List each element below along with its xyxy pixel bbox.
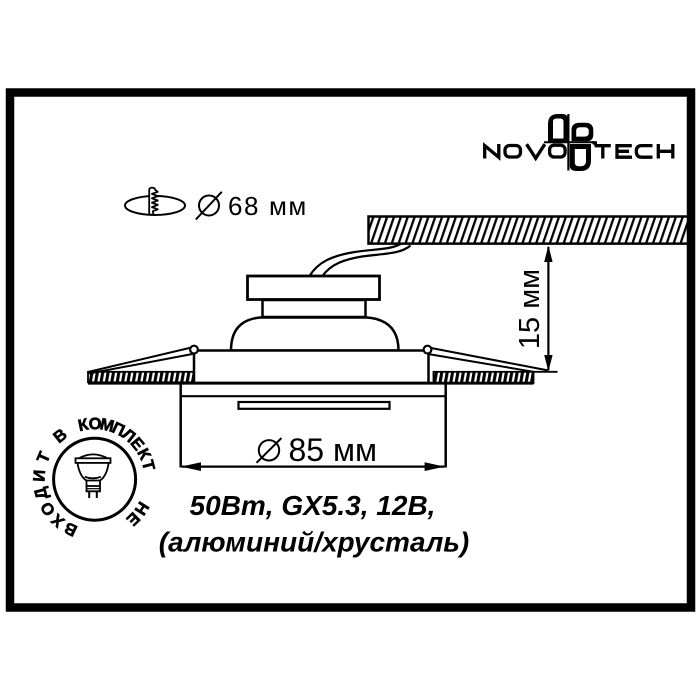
svg-text:(алюминий/хрусталь): (алюминий/хрусталь): [159, 527, 470, 558]
svg-text:И: И: [30, 469, 49, 482]
svg-text:15 мм: 15 мм: [514, 269, 546, 349]
svg-text:68 мм: 68 мм: [228, 191, 308, 221]
svg-text:85 мм: 85 мм: [289, 432, 377, 468]
svg-text:50Вm, GX5.3, 12В,: 50Вm, GX5.3, 12В,: [190, 490, 436, 521]
